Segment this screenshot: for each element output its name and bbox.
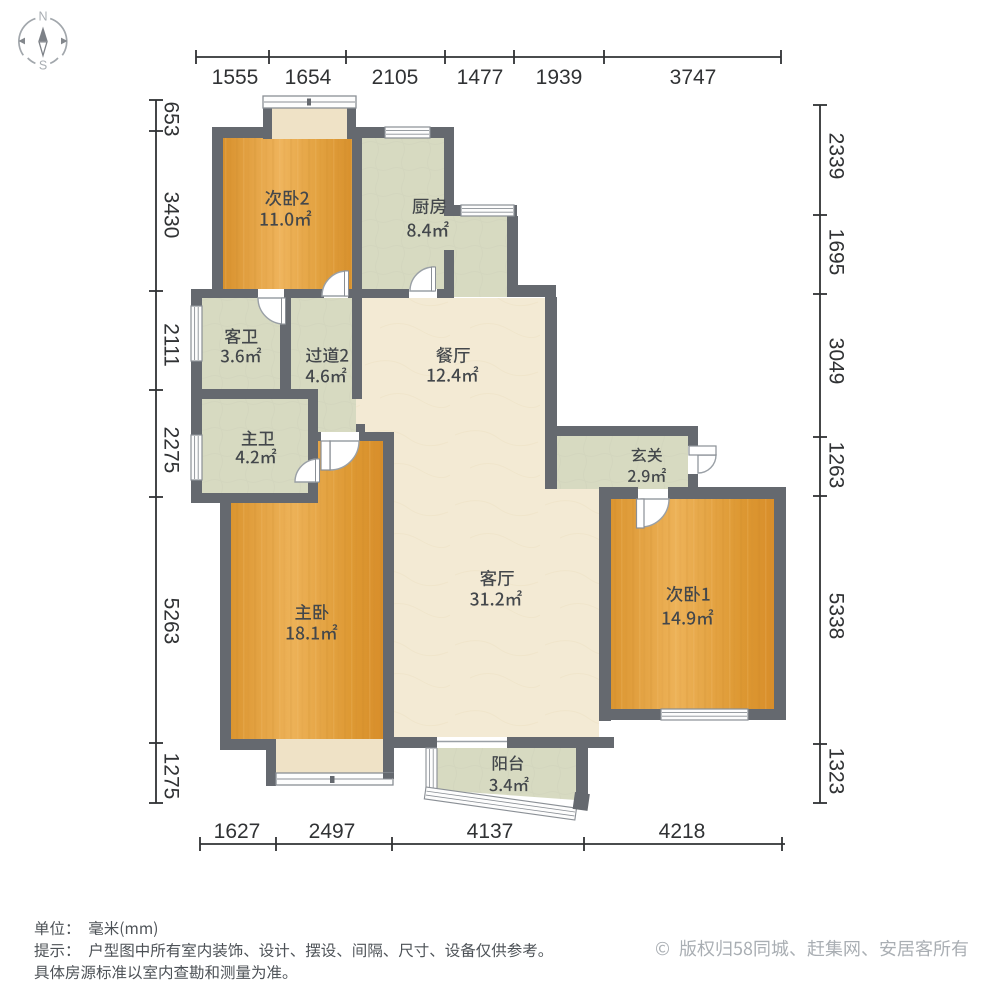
svg-text:653: 653	[160, 101, 183, 136]
svg-text:2111: 2111	[160, 323, 183, 367]
svg-text:1323: 1323	[825, 748, 848, 795]
svg-text:4218: 4218	[659, 820, 706, 843]
svg-text:1627: 1627	[214, 820, 261, 843]
svg-text:2105: 2105	[372, 66, 419, 89]
svg-text:1263: 1263	[825, 442, 848, 489]
svg-text:2497: 2497	[309, 820, 356, 843]
svg-text:1654: 1654	[285, 66, 332, 89]
svg-text:3430: 3430	[160, 192, 183, 239]
svg-text:5263: 5263	[160, 598, 183, 645]
svg-text:S: S	[39, 59, 47, 73]
svg-text:1477: 1477	[457, 66, 504, 89]
svg-text:4137: 4137	[467, 820, 514, 843]
svg-text:1939: 1939	[536, 66, 583, 89]
svg-text:2275: 2275	[160, 427, 183, 474]
svg-text:N: N	[38, 10, 47, 24]
svg-text:2339: 2339	[825, 133, 848, 180]
svg-text:5338: 5338	[825, 593, 848, 640]
svg-text:3049: 3049	[825, 338, 848, 385]
svg-text:1555: 1555	[212, 66, 259, 89]
svg-text:1275: 1275	[160, 753, 183, 800]
svg-text:1695: 1695	[825, 229, 848, 276]
svg-text:3747: 3747	[670, 66, 717, 89]
